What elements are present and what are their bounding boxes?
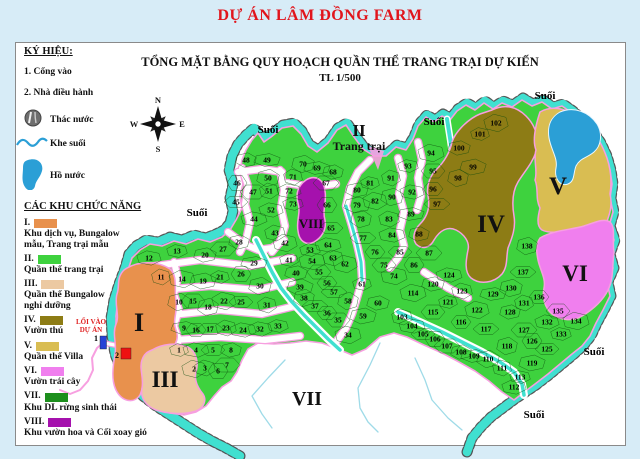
stream-label: Suối bbox=[187, 207, 208, 219]
legend-waterfall-row: Thác nước bbox=[24, 109, 176, 131]
parcel-number: 91 bbox=[387, 174, 395, 183]
legend-zone-label: mẫu, Trang trại mẫu bbox=[24, 240, 176, 250]
parcel-number: 64 bbox=[324, 241, 332, 250]
legend-zone-swatch bbox=[41, 367, 64, 376]
zone-viii-area bbox=[297, 178, 325, 244]
legend-zone-label: Khu dịch vụ, Bungalow bbox=[24, 229, 176, 239]
parcel-number: 94 bbox=[427, 149, 435, 158]
parcel-number: 24 bbox=[239, 326, 247, 335]
legend-zone-item: IV.Vườn thú bbox=[24, 315, 176, 336]
parcel-number: 9 bbox=[182, 324, 186, 333]
stream-label: Suối bbox=[424, 116, 445, 128]
parcel-number: 80 bbox=[353, 186, 361, 195]
legend-zone-label: nghỉ dưỡng bbox=[24, 301, 176, 311]
parcel-number: 108 bbox=[455, 348, 467, 357]
legend-zone-numeral: VII. bbox=[24, 391, 41, 402]
parcel-number: 27 bbox=[219, 245, 227, 254]
legend: KÝ HIỆU: 1. Cổng vào 2. Nhà điều hành Th… bbox=[24, 46, 176, 443]
parcel-number: 19 bbox=[199, 277, 207, 286]
legend-zone-swatch bbox=[36, 342, 59, 351]
legend-lake-label: Hồ nước bbox=[50, 171, 85, 182]
parcel-number: 122 bbox=[471, 306, 483, 315]
parcel-number: 72 bbox=[285, 187, 293, 196]
legend-zones-title: CÁC KHU CHỨC NĂNG bbox=[24, 201, 176, 214]
parcel-number: 127 bbox=[518, 326, 530, 335]
parcel-number: 31 bbox=[263, 301, 271, 310]
parcel-number: 114 bbox=[408, 289, 419, 298]
vii-brooks bbox=[252, 343, 462, 432]
parcel-number: 35 bbox=[334, 316, 342, 325]
parcel-number: 85 bbox=[396, 248, 404, 257]
parcel-number: 115 bbox=[428, 308, 439, 317]
legend-zone-label: Khu DL rừng sinh thái bbox=[24, 403, 176, 413]
parcel-number: 70 bbox=[299, 160, 307, 169]
parcel-number: 129 bbox=[487, 290, 499, 299]
parcel-number: 65 bbox=[327, 224, 335, 233]
parcel-number: 132 bbox=[541, 318, 553, 327]
zone-label: VIII bbox=[299, 216, 324, 231]
parcel-number: 28 bbox=[235, 238, 243, 247]
legend-zone-numeral: I. bbox=[24, 218, 30, 229]
parcel-number: 14 bbox=[178, 275, 186, 284]
legend-lake-row: Hồ nước bbox=[24, 158, 176, 194]
parcel-number: 40 bbox=[292, 269, 300, 278]
parcel-number: 97 bbox=[433, 200, 441, 209]
parcel-number: 101 bbox=[474, 130, 486, 139]
parcel-number: 82 bbox=[371, 197, 379, 206]
legend-zone-item: I.Khu dịch vụ, Bungalowmẫu, Trang trại m… bbox=[24, 218, 176, 250]
legend-note-office: 2. Nhà điều hành bbox=[24, 88, 176, 99]
parcel-number: 54 bbox=[308, 257, 316, 266]
parcel-number: 17 bbox=[206, 325, 214, 334]
legend-zone-item: VI.Vườn trái cây bbox=[24, 366, 176, 387]
stream-icon bbox=[16, 136, 50, 154]
parcel-number: 48 bbox=[242, 156, 250, 165]
legend-zone-label: Khu vườn hoa và Cối xoay gió bbox=[24, 428, 176, 438]
parcel-number: 7 bbox=[225, 361, 229, 370]
parcel-number: 46 bbox=[233, 179, 241, 188]
parcel-number: 95 bbox=[429, 167, 437, 176]
legend-zone-item: III.Quần thể Bungalownghỉ dưỡng bbox=[24, 279, 176, 311]
legend-zone-item: II.Quần thể trang trại bbox=[24, 254, 176, 275]
parcel-number: 92 bbox=[408, 188, 416, 197]
parcel-number: 131 bbox=[518, 299, 530, 308]
parcel-number: 18 bbox=[204, 303, 212, 312]
legend-stream-row: Khe suối bbox=[24, 136, 176, 154]
parcel-number: 109 bbox=[468, 352, 480, 361]
parcel-number: 59 bbox=[359, 312, 367, 321]
parcel-number: 62 bbox=[341, 260, 349, 269]
waterfall-icon bbox=[16, 109, 50, 131]
page: DỰ ÁN LÂM ĐỒNG FARM TỔNG MẶT BẰNG QUY HO… bbox=[0, 0, 640, 459]
parcel-number: 25 bbox=[237, 298, 245, 307]
parcel-number: 34 bbox=[344, 331, 352, 340]
parcel-number: 121 bbox=[442, 298, 454, 307]
parcel-number: 86 bbox=[410, 261, 418, 270]
legend-zone-numeral: VI. bbox=[24, 366, 37, 377]
parcel-number: 29 bbox=[250, 259, 258, 268]
parcel-number: 10 bbox=[175, 298, 183, 307]
parcel-number: 135 bbox=[552, 307, 564, 316]
parcel-number: 15 bbox=[189, 297, 197, 306]
legend-zone-numeral: VIII. bbox=[24, 417, 44, 428]
parcel-number: 90 bbox=[388, 193, 396, 202]
parcel-number: 60 bbox=[374, 299, 382, 308]
parcel-number: 45 bbox=[232, 198, 240, 207]
legend-note-gate: 1. Cổng vào bbox=[24, 67, 176, 78]
stream-label: Suối bbox=[535, 90, 556, 102]
parcel-number: 30 bbox=[256, 282, 264, 291]
parcel-number: 134 bbox=[570, 317, 582, 326]
legend-zone-label: Quần thể trang trại bbox=[24, 265, 176, 275]
lake-icon bbox=[16, 158, 50, 194]
parcel-number: 68 bbox=[329, 168, 337, 177]
parcel-number: 26 bbox=[237, 270, 245, 279]
parcel-number: 99 bbox=[469, 163, 477, 172]
legend-title: KÝ HIỆU: bbox=[24, 46, 176, 59]
legend-zone-numeral: II. bbox=[24, 254, 34, 265]
parcel-number: 36 bbox=[323, 309, 331, 318]
parcel-number: 105 bbox=[417, 330, 429, 339]
parcel-number: 130 bbox=[505, 284, 517, 293]
parcel-number: 126 bbox=[526, 337, 538, 346]
parcel-number: 61 bbox=[358, 280, 366, 289]
parcel-number: 106 bbox=[429, 335, 441, 344]
parcel-number: 66 bbox=[323, 201, 331, 210]
parcel-number: 50 bbox=[264, 174, 272, 183]
parcel-number: 33 bbox=[274, 322, 282, 331]
parcel-number: 67 bbox=[322, 179, 330, 188]
parcel-number: 2 bbox=[192, 365, 196, 374]
parcel-number: 44 bbox=[250, 215, 258, 224]
parcel-number: 32 bbox=[256, 325, 264, 334]
parcel-number: 49 bbox=[263, 156, 271, 165]
legend-zone-numeral: III. bbox=[24, 279, 37, 290]
parcel-number: 102 bbox=[490, 119, 502, 128]
parcel-number: 3 bbox=[203, 364, 207, 373]
parcel-number: 96 bbox=[429, 185, 437, 194]
parcel-number: 5 bbox=[211, 346, 215, 355]
parcel-number: 52 bbox=[267, 206, 275, 215]
legend-zone-swatch bbox=[40, 316, 63, 325]
parcel-number: 21 bbox=[216, 273, 224, 282]
parcel-number: 107 bbox=[441, 342, 453, 351]
parcel-number: 104 bbox=[406, 322, 418, 331]
legend-zone-swatch bbox=[34, 219, 57, 228]
parcel-number: 128 bbox=[504, 308, 516, 317]
parcel-number: 38 bbox=[300, 294, 308, 303]
parcel-number: 88 bbox=[415, 230, 423, 239]
zone-label: IV bbox=[477, 211, 505, 238]
parcel-number: 73 bbox=[289, 200, 297, 209]
legend-zones-list: I.Khu dịch vụ, Bungalowmẫu, Trang trại m… bbox=[24, 218, 176, 438]
parcel-number: 118 bbox=[502, 342, 513, 351]
parcel-number: 117 bbox=[481, 325, 492, 334]
parcel-number: 8 bbox=[229, 346, 233, 355]
parcel-number: 4 bbox=[194, 346, 198, 355]
parcel-number: 16 bbox=[192, 326, 200, 335]
legend-zone-numeral: IV. bbox=[24, 315, 36, 326]
parcel-number: 55 bbox=[315, 268, 323, 277]
zone-label: VII bbox=[292, 388, 322, 410]
parcel-number: 98 bbox=[454, 174, 462, 183]
parcel-number: 42 bbox=[281, 239, 289, 248]
parcel-number: 136 bbox=[533, 293, 545, 302]
parcel-number: 89 bbox=[407, 210, 415, 219]
parcel-number: 71 bbox=[289, 173, 297, 182]
farm-zone-name: Trang trại bbox=[333, 139, 386, 153]
parcel-number: 116 bbox=[456, 318, 467, 327]
parcel-number: 47 bbox=[249, 188, 257, 197]
farm-zone-numeral: II bbox=[352, 121, 366, 140]
zone-label: V bbox=[549, 173, 567, 200]
parcel-number: 120 bbox=[427, 280, 439, 289]
legend-zone-label: Quần thể Villa bbox=[24, 352, 176, 362]
legend-zone-swatch bbox=[45, 393, 68, 402]
parcel-number: 81 bbox=[366, 179, 374, 188]
legend-zone-item: VII.Khu DL rừng sinh thái bbox=[24, 392, 176, 413]
legend-zone-numeral: V. bbox=[24, 341, 32, 352]
parcel-number: 78 bbox=[357, 215, 365, 224]
parcel-number: 1 bbox=[177, 346, 181, 355]
legend-zone-item: V.Quần thể Villa bbox=[24, 341, 176, 362]
parcel-number: 100 bbox=[453, 144, 465, 153]
parcel-number: 111 bbox=[497, 364, 508, 373]
legend-waterfall-label: Thác nước bbox=[50, 115, 93, 126]
parcel-number: 112 bbox=[509, 383, 520, 392]
legend-zone-label: Quần thể Bungalow bbox=[24, 290, 176, 300]
legend-zone-label: Vườn thú bbox=[24, 326, 176, 336]
parcel-number: 22 bbox=[220, 297, 228, 306]
compass-letter: E bbox=[179, 119, 185, 129]
parcel-number: 53 bbox=[306, 246, 314, 255]
parcel-number: 56 bbox=[323, 279, 331, 288]
parcel-number: 93 bbox=[404, 162, 412, 171]
parcel-number: 39 bbox=[296, 283, 304, 292]
parcel-number: 41 bbox=[285, 256, 293, 265]
parcel-number: 23 bbox=[222, 324, 230, 333]
parcel-number: 74 bbox=[390, 272, 398, 281]
legend-zone-swatch bbox=[38, 255, 61, 264]
parcel-number: 113 bbox=[515, 373, 526, 382]
zone-label: VI bbox=[562, 261, 588, 286]
stream-label: Suối bbox=[258, 124, 279, 136]
parcel-number: 63 bbox=[329, 254, 337, 263]
parcel-number: 75 bbox=[380, 261, 388, 270]
stream-label: Suối bbox=[524, 409, 545, 421]
parcel-number: 119 bbox=[527, 359, 538, 368]
stream-label: Suối bbox=[584, 346, 605, 358]
parcel-number: 87 bbox=[425, 249, 433, 258]
parcel-number: 123 bbox=[456, 287, 468, 296]
legend-zone-label: Vườn trái cây bbox=[24, 377, 176, 387]
parcel-number: 124 bbox=[443, 271, 455, 280]
parcel-number: 103 bbox=[396, 313, 408, 322]
legend-zone-item: VIII.Khu vườn hoa và Cối xoay gió bbox=[24, 417, 176, 438]
parcel-number: 69 bbox=[313, 164, 321, 173]
parcel-number: 43 bbox=[271, 229, 279, 238]
parcel-number: 79 bbox=[353, 201, 361, 210]
parcel-number: 6 bbox=[216, 367, 220, 376]
parcel-number: 20 bbox=[201, 251, 209, 260]
parcel-number: 137 bbox=[517, 268, 529, 277]
parcel-number: 125 bbox=[541, 345, 553, 354]
legend-stream-label: Khe suối bbox=[50, 139, 86, 150]
parcel-number: 110 bbox=[483, 355, 494, 364]
parcel-number: 133 bbox=[555, 330, 567, 339]
parcel-number: 138 bbox=[521, 242, 533, 251]
parcel-number: 58 bbox=[344, 297, 352, 306]
parcel-number: 76 bbox=[371, 248, 379, 257]
parcel-number: 51 bbox=[265, 187, 273, 196]
legend-zone-swatch bbox=[41, 280, 64, 289]
parcel-number: 83 bbox=[385, 215, 393, 224]
parcel-number: 77 bbox=[359, 234, 367, 243]
parcel-number: 57 bbox=[330, 288, 338, 297]
legend-zone-swatch bbox=[48, 418, 71, 427]
parcel-number: 37 bbox=[311, 302, 319, 311]
parcel-number: 84 bbox=[388, 231, 396, 240]
